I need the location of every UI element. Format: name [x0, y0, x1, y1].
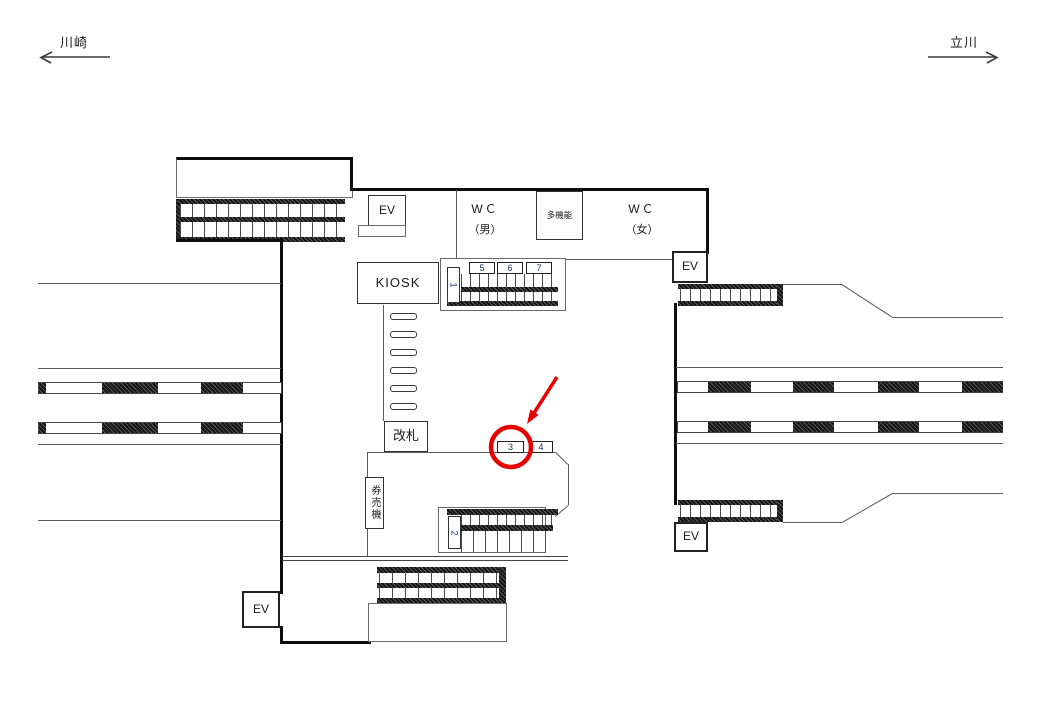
position-2-box: 2 — [448, 516, 461, 549]
tactile-strip — [878, 422, 919, 432]
position-2-label: 2 — [449, 530, 459, 535]
ticket-machines-label: 券売機 — [369, 485, 380, 521]
wc-women: WＣ （女） — [612, 200, 672, 237]
position-6-box: 6 — [497, 262, 523, 274]
tactile-strip — [39, 383, 46, 393]
ticket-gate-machine — [390, 385, 417, 392]
elevator-top-right: EV — [672, 251, 708, 283]
direction-tachikawa-label: 立川 — [926, 32, 1002, 51]
ticket-gate-machine — [390, 313, 417, 320]
escalator-steps — [180, 222, 343, 237]
ticket-gate-machine — [390, 349, 417, 356]
escalator-steps — [180, 204, 343, 217]
position-7-label: 7 — [536, 263, 541, 273]
tactile-strip — [708, 382, 751, 392]
escalator-band — [678, 301, 783, 306]
position-5-box: 5 — [469, 262, 495, 274]
position-5-label: 5 — [479, 263, 484, 273]
kiosk: KIOSK — [357, 262, 439, 304]
gate-area-wall — [383, 305, 384, 421]
position-7-box: 7 — [526, 262, 552, 274]
position-1-box: 1 — [447, 267, 460, 303]
wall — [350, 157, 353, 191]
right-arrow-icon — [926, 51, 1002, 65]
elevator-bottom-left: EV — [242, 591, 280, 628]
stair-steps — [461, 531, 546, 552]
platform-line — [892, 493, 1003, 494]
platform-line — [783, 284, 842, 285]
escalator-steps — [379, 573, 499, 583]
wall-top — [350, 188, 709, 191]
platform-line — [38, 444, 281, 445]
stairs-right-top — [678, 284, 783, 306]
platform-line — [676, 443, 1003, 444]
position-1-label: 1 — [448, 282, 458, 287]
escalator-upper-left — [176, 199, 345, 242]
wall-left — [280, 238, 283, 594]
platform-line — [38, 520, 281, 521]
wc-women-sublabel: （女） — [612, 221, 672, 237]
stair-steps — [680, 289, 777, 301]
tactile-strip — [39, 423, 46, 433]
tactile-strip — [793, 422, 834, 432]
tactile-strip — [201, 383, 243, 393]
elevator-shaft — [358, 225, 406, 237]
wc-men: WＣ （男） — [455, 200, 515, 237]
elevator-bottom-right: EV — [674, 522, 708, 552]
wall-right-mid — [674, 303, 677, 505]
kiosk-label: KIOSK — [376, 276, 421, 290]
direction-kawasaki: 川崎 — [36, 32, 112, 65]
elevator-label: EV — [253, 603, 269, 616]
ticket-gate: 改札 — [384, 421, 428, 452]
tactile-strip — [962, 422, 1003, 432]
concourse-bottom-line — [282, 556, 568, 557]
escalator-edge — [777, 500, 783, 522]
stairs-right-bottom — [678, 500, 783, 522]
escalator-bottom — [377, 567, 506, 603]
wc-men-label: WＣ — [455, 200, 515, 217]
elevator-label: EV — [379, 204, 395, 217]
station-floor-plan: 川崎 立川 EV WＣ （男） 多機能 W — [0, 0, 1040, 720]
multi-function-room: 多機能 — [536, 191, 583, 240]
ticket-gate-machine — [390, 403, 417, 410]
platform-line — [676, 367, 1003, 368]
direction-tachikawa: 立川 — [926, 32, 1002, 65]
platform-edge-left-1 — [38, 382, 282, 394]
platform-taper — [841, 284, 893, 318]
platform-line — [38, 368, 281, 369]
ticket-gate-label: 改札 — [393, 429, 419, 443]
platform-edge-right-2 — [677, 421, 1003, 433]
concourse-bottom-line — [282, 560, 568, 561]
elevator-label: EV — [682, 260, 698, 273]
wall-right-upper — [706, 188, 709, 254]
platform-line — [38, 283, 281, 284]
escalator-band — [461, 287, 558, 292]
escalator-band — [447, 301, 558, 306]
stair-steps — [680, 505, 777, 517]
position-6-label: 6 — [507, 263, 512, 273]
escalator-edge — [499, 567, 506, 603]
ticket-gate-machine — [390, 367, 417, 374]
elevator-top-left: EV — [368, 195, 406, 226]
escalator-steps — [379, 588, 499, 598]
ticket-machines: 券売機 — [365, 477, 384, 529]
multi-function-label: 多機能 — [547, 211, 573, 220]
tactile-strip — [962, 382, 1003, 392]
wc-women-label: WＣ — [612, 200, 672, 217]
stairs-upper-left — [176, 157, 353, 198]
wall-bottom — [280, 641, 371, 644]
highlight-arrow-shaft — [534, 377, 557, 413]
wc-men-sublabel: （男） — [455, 221, 515, 237]
highlight-circle — [491, 427, 531, 467]
stairs-bottom — [368, 603, 507, 642]
platform-line — [893, 317, 1003, 318]
tactile-strip — [201, 423, 243, 433]
wall — [176, 239, 283, 242]
tactile-strip — [102, 383, 158, 393]
elevator-label: EV — [683, 530, 699, 543]
platform-line — [783, 522, 842, 523]
highlight-arrow-head — [527, 410, 539, 425]
tactile-strip — [793, 382, 834, 392]
tactile-strip — [878, 382, 919, 392]
platform-taper — [842, 493, 893, 523]
tactile-strip — [102, 423, 158, 433]
direction-kawasaki-label: 川崎 — [36, 32, 112, 51]
highlight-annotation — [480, 360, 580, 475]
left-arrow-icon — [36, 51, 112, 65]
ticket-gate-machine — [390, 331, 417, 338]
tactile-strip — [708, 422, 751, 432]
platform-edge-right-1 — [677, 381, 1003, 393]
escalator-edge — [777, 284, 783, 306]
platform-edge-left-2 — [38, 422, 282, 434]
